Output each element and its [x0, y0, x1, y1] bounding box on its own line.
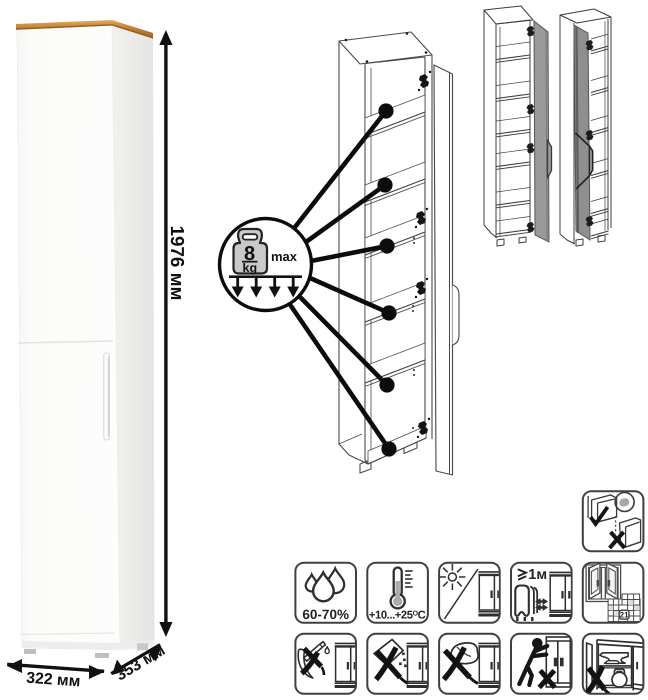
svg-text:1м: 1м: [528, 567, 547, 583]
svg-text:60-70%: 60-70%: [302, 607, 349, 622]
svg-text:max: max: [271, 249, 298, 264]
svg-text:1976 мм: 1976 мм: [167, 226, 188, 301]
svg-text:21: 21: [620, 610, 629, 619]
svg-text:+10...+25OC: +10...+25OC: [369, 610, 426, 622]
svg-text:322 мм: 322 мм: [26, 670, 81, 691]
svg-text:kg: kg: [243, 261, 258, 275]
